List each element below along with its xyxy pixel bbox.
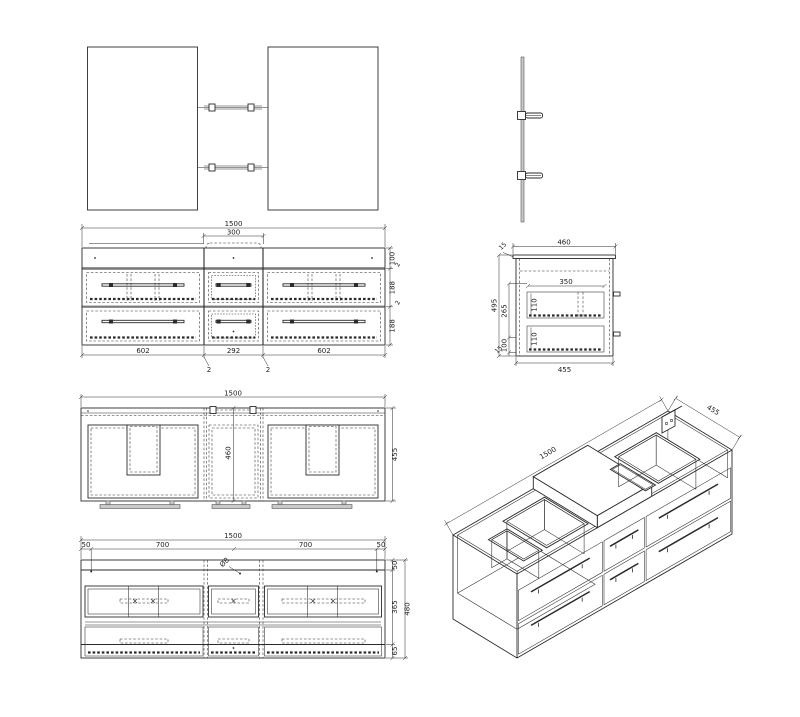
front-dim-300: 300: [227, 229, 240, 237]
plan-connector-right: [250, 407, 256, 414]
front-dim-gap-top: 2: [394, 262, 402, 269]
plan-feet: [100, 501, 352, 509]
bottom-dim-50-left: 50: [82, 541, 91, 549]
bottom-hole-right: [376, 571, 378, 573]
bottom-dim-right: 50 365 65 480: [386, 558, 412, 660]
bottom-dim-365: 365: [391, 600, 399, 613]
side-dim-top: 460: [511, 239, 618, 255]
drawing-canvas: 1500 300: [0, 0, 800, 717]
mirror-side-view: [518, 57, 543, 222]
bottom-dim-700-right: 700: [299, 541, 312, 549]
side-dim-460: 460: [557, 239, 570, 247]
side-bracket-top: [614, 292, 621, 296]
front-callout-2-left: 2: [207, 366, 211, 374]
cabinet-bottom-view: 1500 50 700 700 50 Ø8: [79, 532, 412, 660]
drawing-sheet: 1500 300: [0, 0, 800, 717]
side-dim-495: 495: [491, 299, 499, 312]
front-dim-188-b: 188: [389, 319, 397, 332]
side-dim-110-b: 110: [531, 332, 539, 345]
plan-dim-455: 455: [391, 448, 399, 461]
cabinet-front-view: 1500 300: [80, 220, 402, 374]
front-dim-602-left: 602: [136, 347, 149, 355]
mirror-front-view: [88, 47, 379, 210]
mirror-right-panel: [268, 47, 378, 210]
plan-dim-1500: 1500: [224, 390, 242, 398]
front-hole-left: [94, 257, 96, 259]
front-dim-1500: 1500: [225, 220, 243, 228]
bottom-carcass: [81, 560, 385, 658]
bottom-dim-50-right: 50: [377, 541, 386, 549]
side-dim-350-label: 350: [559, 278, 572, 286]
cabinet-side-view: 460 350 110 110: [491, 239, 621, 375]
bottom-dim-1500: 1500: [224, 532, 242, 540]
bottom-dim-480: 480: [404, 602, 412, 615]
plan-dim-top: 1500: [79, 390, 387, 408]
mirror-left-panel: [88, 47, 198, 210]
bottom-hole-left: [90, 571, 92, 573]
side-bracket-bottom: [614, 332, 621, 336]
side-dim-265: 265: [501, 304, 509, 317]
front-dim-gap-mid: 2: [394, 300, 402, 307]
front-dim-right-chain: 100 2 188 2 188: [386, 246, 402, 347]
front-hole-center: [233, 257, 235, 259]
side-dim-bottom: 455: [514, 357, 615, 374]
plan-connector-left: [210, 407, 216, 414]
front-carcass: [82, 248, 385, 345]
front-dim-292: 292: [227, 347, 240, 355]
mirror-bracket-top: [518, 112, 543, 120]
iso-dim-1500: 1500: [538, 445, 557, 461]
plan-dim-right: 455: [386, 406, 399, 503]
mirror-edge: [521, 57, 524, 222]
front-dim-center-top: 300: [202, 229, 266, 245]
front-dim-188-a: 188: [389, 281, 397, 294]
side-dim-110-a: 110: [531, 298, 539, 311]
front-dim-bottom: 602 292 602 2 2: [80, 346, 387, 374]
front-dim-602-right: 602: [317, 347, 330, 355]
side-dim-15-top: 15: [498, 241, 509, 252]
side-countertop: [513, 255, 616, 259]
plan-dim-460: 460: [225, 446, 233, 459]
mirror-connector-bottom: [198, 164, 269, 171]
front-callout-2-right: 2: [266, 366, 270, 374]
side-dim-455: 455: [558, 366, 571, 374]
front-hole-right: [371, 257, 373, 259]
mirror-connector-top: [198, 104, 269, 111]
bottom-dim-700-left: 700: [156, 541, 169, 549]
bottom-dim-65: 65: [391, 647, 399, 656]
mirror-bracket-bottom: [518, 172, 543, 180]
cabinet-plan-view: 1500 460: [79, 390, 399, 509]
bottom-dim-top: 1500 50 700 700 50: [79, 532, 387, 559]
isometric-view: 1500 455: [445, 396, 742, 658]
iso-dim-455: 455: [705, 403, 721, 417]
bottom-dim-50-band: 50: [391, 561, 399, 570]
